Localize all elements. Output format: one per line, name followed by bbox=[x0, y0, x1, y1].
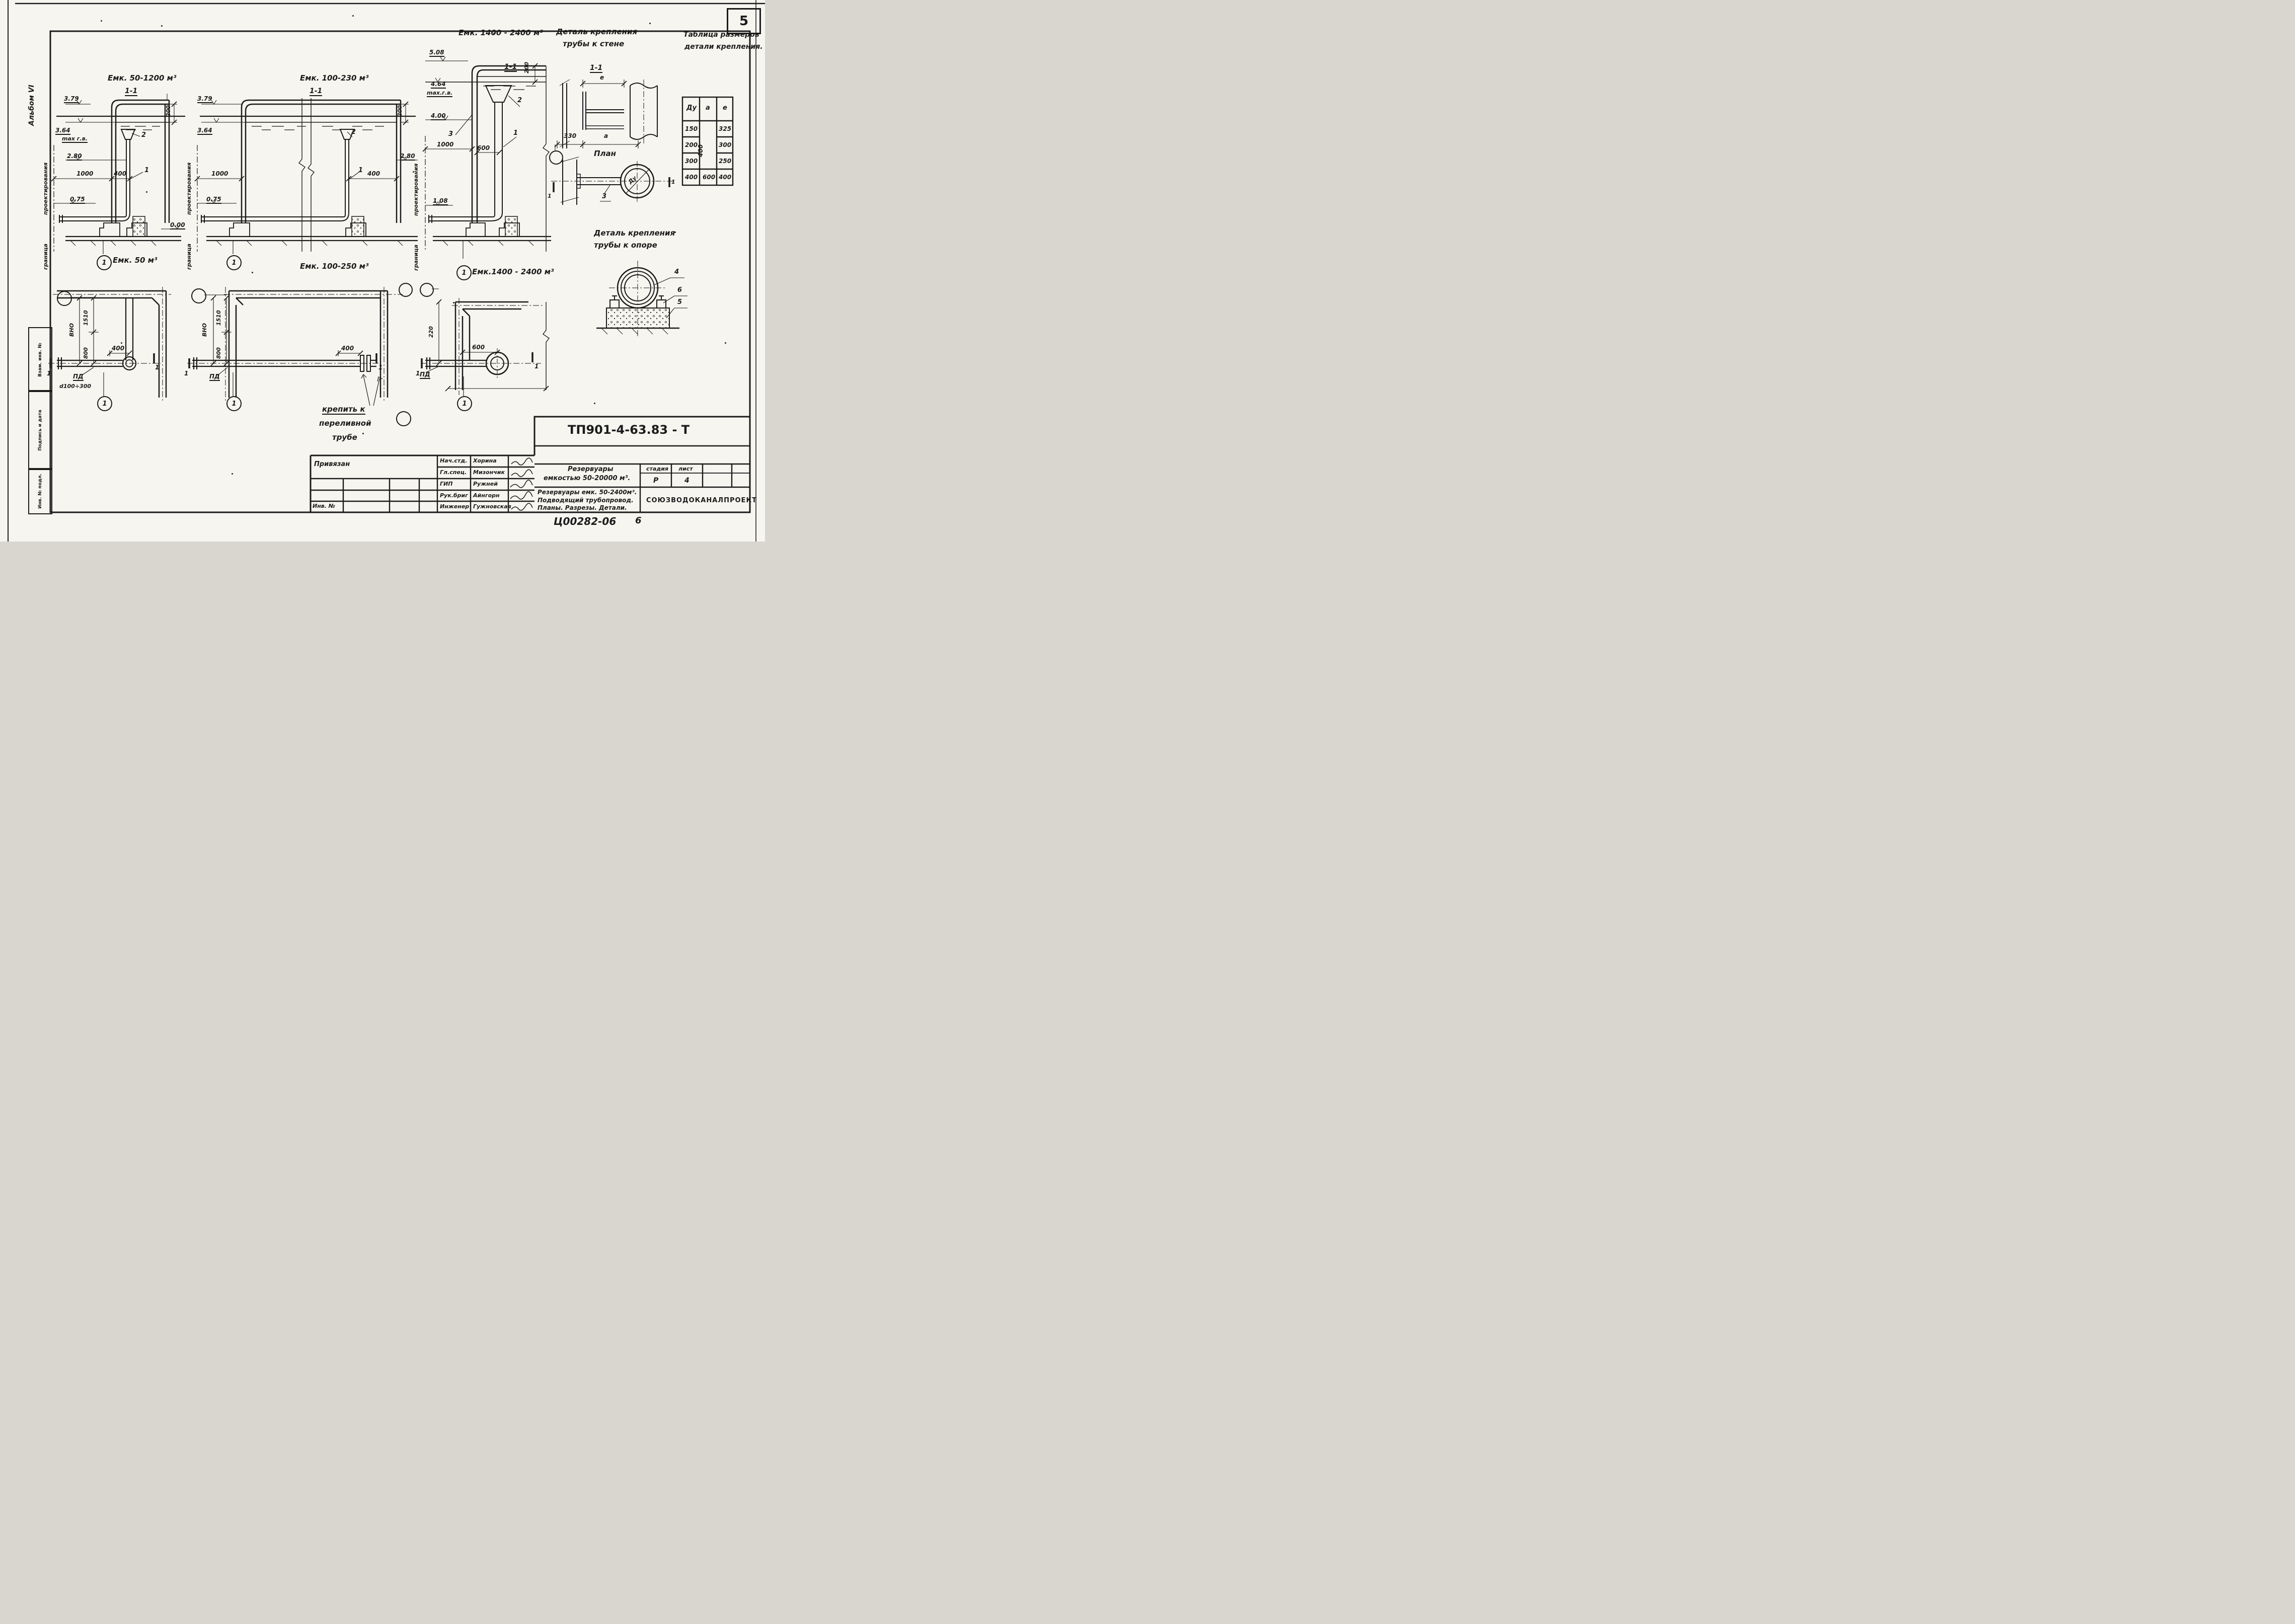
titleblock-subtitle-3: Планы. Разрезы. Детали. bbox=[538, 505, 627, 511]
note-line1: крепить к bbox=[322, 406, 365, 415]
note-line2: переливной bbox=[319, 420, 371, 427]
section1-caption: Емк. 50 м³ bbox=[113, 257, 158, 264]
plan-2-linework bbox=[187, 287, 403, 403]
name-3: Айнгорн bbox=[473, 493, 500, 498]
section1-mark: 1-1 bbox=[125, 88, 137, 96]
plan1-pipe-label: ПД bbox=[73, 373, 84, 381]
axis-circle bbox=[420, 283, 434, 297]
section1-dim-a: 1000 bbox=[76, 171, 93, 177]
titleblock-binding: Привязан bbox=[314, 461, 350, 468]
section1-boundary-upper: проектирования bbox=[43, 163, 48, 215]
size-table-col-dy: Ду bbox=[686, 105, 697, 111]
section1-roof-dim: 200 bbox=[166, 105, 171, 117]
section2-roof-dim: 200 bbox=[397, 105, 403, 117]
section-2-linework bbox=[195, 98, 418, 254]
section1-callout-funnel: 2 bbox=[141, 132, 146, 138]
plan3-bubble: 1 bbox=[457, 396, 472, 411]
plan3-dim-h: 600 bbox=[472, 344, 485, 350]
section1-boundary-lower: граница bbox=[43, 244, 48, 270]
plan-label: План bbox=[594, 150, 616, 158]
section2-boundary-lower: граница bbox=[186, 244, 192, 270]
plan3-pipe-label: ПД bbox=[420, 371, 430, 379]
section1-elev-top: 3.79 bbox=[64, 96, 79, 103]
section1-elev-mid: 2.80 bbox=[67, 153, 82, 161]
section2-bubble: 1 bbox=[226, 255, 242, 270]
stamp-podpis-label: Подпись и дата bbox=[38, 410, 43, 451]
size-table-dy-0: 150 bbox=[685, 126, 698, 132]
stamp-vzam-label: Взам. инв. № bbox=[38, 343, 43, 377]
plan3-dim-v: 220 bbox=[428, 326, 434, 338]
plan-3-linework bbox=[421, 289, 549, 396]
size-table-col-a: а bbox=[706, 105, 710, 111]
section3-mark: 1-1 bbox=[504, 63, 517, 72]
size-table-e-1: 300 bbox=[719, 142, 731, 148]
section2-elev-low: 0.75 bbox=[206, 196, 221, 204]
plan1-mark-right: 1 bbox=[155, 364, 159, 370]
name-0: Хорина bbox=[473, 458, 497, 463]
plan2-mark-right: 1 bbox=[378, 364, 382, 370]
size-table-dy-3: 400 bbox=[685, 174, 698, 180]
section2-dim-a: 1000 bbox=[211, 171, 228, 177]
scan-specks bbox=[101, 20, 102, 22]
size-table-e-3: 400 bbox=[719, 174, 731, 180]
name-2: Ружней bbox=[473, 481, 498, 487]
section1-dim-b: 400 bbox=[114, 171, 126, 177]
support-detail-header-1: Деталь крепления bbox=[594, 229, 675, 237]
section2-elev-mid: 2.80 bbox=[400, 153, 415, 161]
role-3: Рук.бриг bbox=[440, 493, 468, 498]
section3-dim-b: 600 bbox=[477, 145, 490, 151]
note-line3: трубе bbox=[332, 434, 357, 441]
support-detail-linework bbox=[596, 261, 687, 336]
plan3-mark-right: 1 bbox=[534, 363, 539, 369]
titleblock-sheet-label: лист bbox=[678, 466, 693, 472]
blueprint-sheet: 5 Альбом VI Взам. инв. № Подпись и дата … bbox=[0, 0, 765, 542]
section3-dim-a: 1000 bbox=[437, 141, 453, 147]
role-0: Нач.стд. bbox=[440, 458, 467, 463]
titleblock-subtitle-2: Подводящий трубопровод. bbox=[538, 497, 634, 503]
wall-detail-mark: 1-1 bbox=[590, 64, 602, 73]
section3-elev-funnel: 4.00 bbox=[431, 113, 446, 120]
note-leaders bbox=[361, 374, 382, 406]
section3-callout-funnel: 2 bbox=[517, 97, 522, 104]
titleblock-stage: Р bbox=[653, 477, 658, 484]
section1-bubble: 1 bbox=[97, 255, 112, 270]
section2-boundary-upper: проектирования bbox=[186, 163, 192, 215]
section2-elev-water: 3.64 bbox=[197, 127, 212, 135]
stamp-vzam: Взам. инв. № bbox=[28, 327, 52, 392]
axis-circle bbox=[399, 283, 413, 297]
album-label: Альбом VI bbox=[28, 85, 35, 126]
titleblock-organization: СОЮЗВОДОКАНАЛПРОЕКТ bbox=[646, 497, 757, 504]
section3-callout-pipe: 1 bbox=[513, 130, 518, 136]
name-4: Гужновская bbox=[473, 504, 511, 509]
titleblock-project-1: Резервуары bbox=[568, 466, 614, 473]
size-table-title-2: детали крепления. bbox=[684, 43, 763, 50]
section3-elev-low: 1.08 bbox=[433, 198, 448, 205]
section2-title: Емк. 100-230 м³ bbox=[300, 74, 369, 82]
wall-detail-mark-left: 1 bbox=[548, 193, 552, 199]
section2-mark: 1-1 bbox=[310, 88, 322, 96]
size-table-dy-2: 300 bbox=[685, 158, 698, 164]
section2-caption: Емк. 100-250 м³ bbox=[300, 263, 369, 270]
size-table-a-merged: 400 bbox=[698, 144, 704, 157]
wall-detail-header-1: Деталь крепления bbox=[556, 28, 637, 36]
axis-circle bbox=[191, 288, 206, 303]
size-table-a-last: 600 bbox=[703, 174, 715, 180]
section3-callout-outlet: 3 bbox=[448, 131, 453, 137]
axis-circle bbox=[57, 291, 72, 306]
name-1: Мизончик bbox=[473, 470, 505, 475]
stamp-podpis: Подпись и дата bbox=[28, 390, 52, 470]
plan2-axis-label: ВНО bbox=[202, 323, 207, 337]
plan2-bubble: 1 bbox=[226, 396, 242, 411]
plan2-mark-left: 1 bbox=[184, 370, 188, 376]
size-table-e-2: 250 bbox=[719, 158, 731, 164]
support-callout-pad: 5 bbox=[677, 299, 682, 305]
section1-water-note: max г.в. bbox=[62, 136, 88, 143]
section3-title: Емк. 1400 - 2400 м³ bbox=[458, 29, 543, 37]
axis-circle bbox=[396, 411, 411, 426]
doc-page: 6 bbox=[635, 516, 642, 525]
titleblock-subtitle-1: Резервуары емк. 50-2400м³. bbox=[538, 489, 637, 495]
support-detail-header-2: трубы к опоре bbox=[594, 242, 657, 249]
plan1-dim-h: 400 bbox=[112, 345, 124, 351]
size-table-dy-1: 200 bbox=[685, 142, 698, 148]
wall-detail-linework bbox=[551, 80, 674, 205]
size-table-e-0: 325 bbox=[719, 126, 731, 132]
sheet-number: 5 bbox=[739, 14, 748, 29]
role-2: ГИП bbox=[440, 481, 452, 487]
wall-detail-callout: 3 bbox=[602, 193, 606, 200]
support-callout-clamp: 4 bbox=[674, 269, 679, 275]
role-4: Инженер bbox=[440, 504, 469, 509]
section3-caption: Емк.1400 - 2400 м³ bbox=[472, 268, 554, 276]
titleblock-inv-label: Инв. № bbox=[313, 503, 335, 509]
plan2-pipe-label: ПД bbox=[209, 373, 220, 381]
wall-detail-header-2: трубы к стене bbox=[563, 40, 624, 48]
stamp-inv: Инв. № подл. bbox=[28, 468, 52, 514]
section1-elev-zero: 0.00 bbox=[170, 222, 185, 229]
section3-elev-water: 4.64 bbox=[431, 81, 446, 89]
section2-dim-b: 400 bbox=[367, 171, 380, 177]
section3-boundary-lower: граница bbox=[413, 245, 419, 271]
plan1-dim-v1: 1510 bbox=[83, 310, 89, 326]
support-callout-bolt: 6 bbox=[677, 287, 682, 293]
section2-callout-pipe: 1 bbox=[358, 167, 363, 174]
section3-water-note: max.г.в. bbox=[427, 90, 452, 97]
doc-code: Ц00282-06 bbox=[554, 516, 616, 526]
axis-circle bbox=[549, 150, 563, 165]
plan2-dim-v2: 800 bbox=[216, 347, 221, 359]
size-table-title-1: Таблица размеров bbox=[683, 31, 759, 38]
stamp-inv-label: Инв. № подл. bbox=[38, 474, 43, 509]
section2-callout-funnel: 2 bbox=[351, 129, 356, 135]
wall-detail-dim-e: е bbox=[600, 74, 604, 81]
titleblock-sheet: 4 bbox=[684, 477, 690, 484]
plan1-bubble: 1 bbox=[97, 396, 112, 411]
plan1-note: d100÷300 bbox=[59, 383, 91, 389]
section1-elev-low: 0.75 bbox=[70, 196, 85, 204]
plan2-dim-h: 400 bbox=[341, 345, 354, 351]
plan3-mark-left: 1 bbox=[416, 370, 420, 376]
size-table-col-e: е bbox=[723, 105, 727, 111]
section1-elev-water: 3.64 bbox=[55, 127, 70, 135]
section3-roof-dim: 200 bbox=[524, 62, 529, 73]
plan1-dim-v2: 800 bbox=[83, 347, 89, 359]
plan1-mark-left: 1 bbox=[47, 370, 51, 376]
titleblock-stage-label: стадия bbox=[646, 466, 668, 472]
section1-callout-pipe: 1 bbox=[144, 167, 149, 174]
section2-elev-top: 3.79 bbox=[197, 96, 212, 103]
wall-detail-mark-right: 1 bbox=[671, 179, 675, 185]
section1-title: Емк. 50-1200 м³ bbox=[108, 74, 177, 82]
role-1: Гл.спец. bbox=[440, 470, 467, 475]
titleblock-doc-number: ТП901-4-63.83 - Т bbox=[568, 424, 690, 436]
section3-elev-top: 5.08 bbox=[429, 49, 444, 57]
titleblock-project-2: емкостью 50-20000 м³. bbox=[544, 475, 630, 482]
wall-detail-dim-330: 330 bbox=[564, 133, 576, 139]
signatures bbox=[510, 458, 532, 510]
section3-bubble: 1 bbox=[456, 265, 472, 280]
plan2-dim-v1: 1510 bbox=[216, 310, 221, 326]
section3-boundary-upper: проектирования bbox=[413, 164, 419, 216]
plan1-axis-label: ВНО bbox=[69, 323, 74, 337]
wall-detail-dim-a: а bbox=[604, 133, 608, 139]
